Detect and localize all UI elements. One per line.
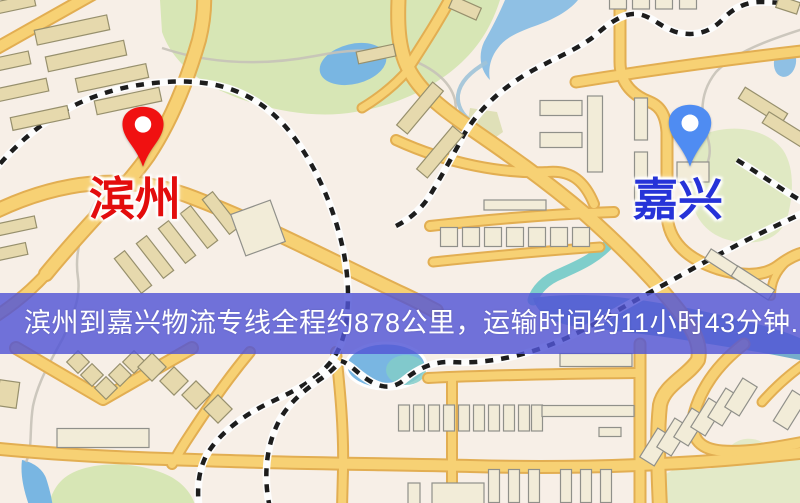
route-info-banner: 滨州到嘉兴物流专线全程约878公里，运输时间约11小时43分钟.: [0, 293, 800, 354]
origin-city-label: 滨州: [89, 176, 181, 222]
location-pin-icon: [666, 103, 714, 169]
origin-pin[interactable]: [120, 105, 166, 169]
destination-city-label: 嘉兴: [633, 177, 723, 222]
route-info-text: 滨州到嘉兴物流专线全程约878公里，运输时间约11小时43分钟.: [0, 293, 800, 354]
map-view: 滨州 嘉兴 滨州到嘉兴物流专线全程约878公里，运输时间约11小时43分钟.: [0, 0, 800, 503]
location-pin-icon: [120, 105, 166, 169]
destination-pin[interactable]: [666, 103, 714, 169]
map-canvas[interactable]: [0, 0, 800, 503]
